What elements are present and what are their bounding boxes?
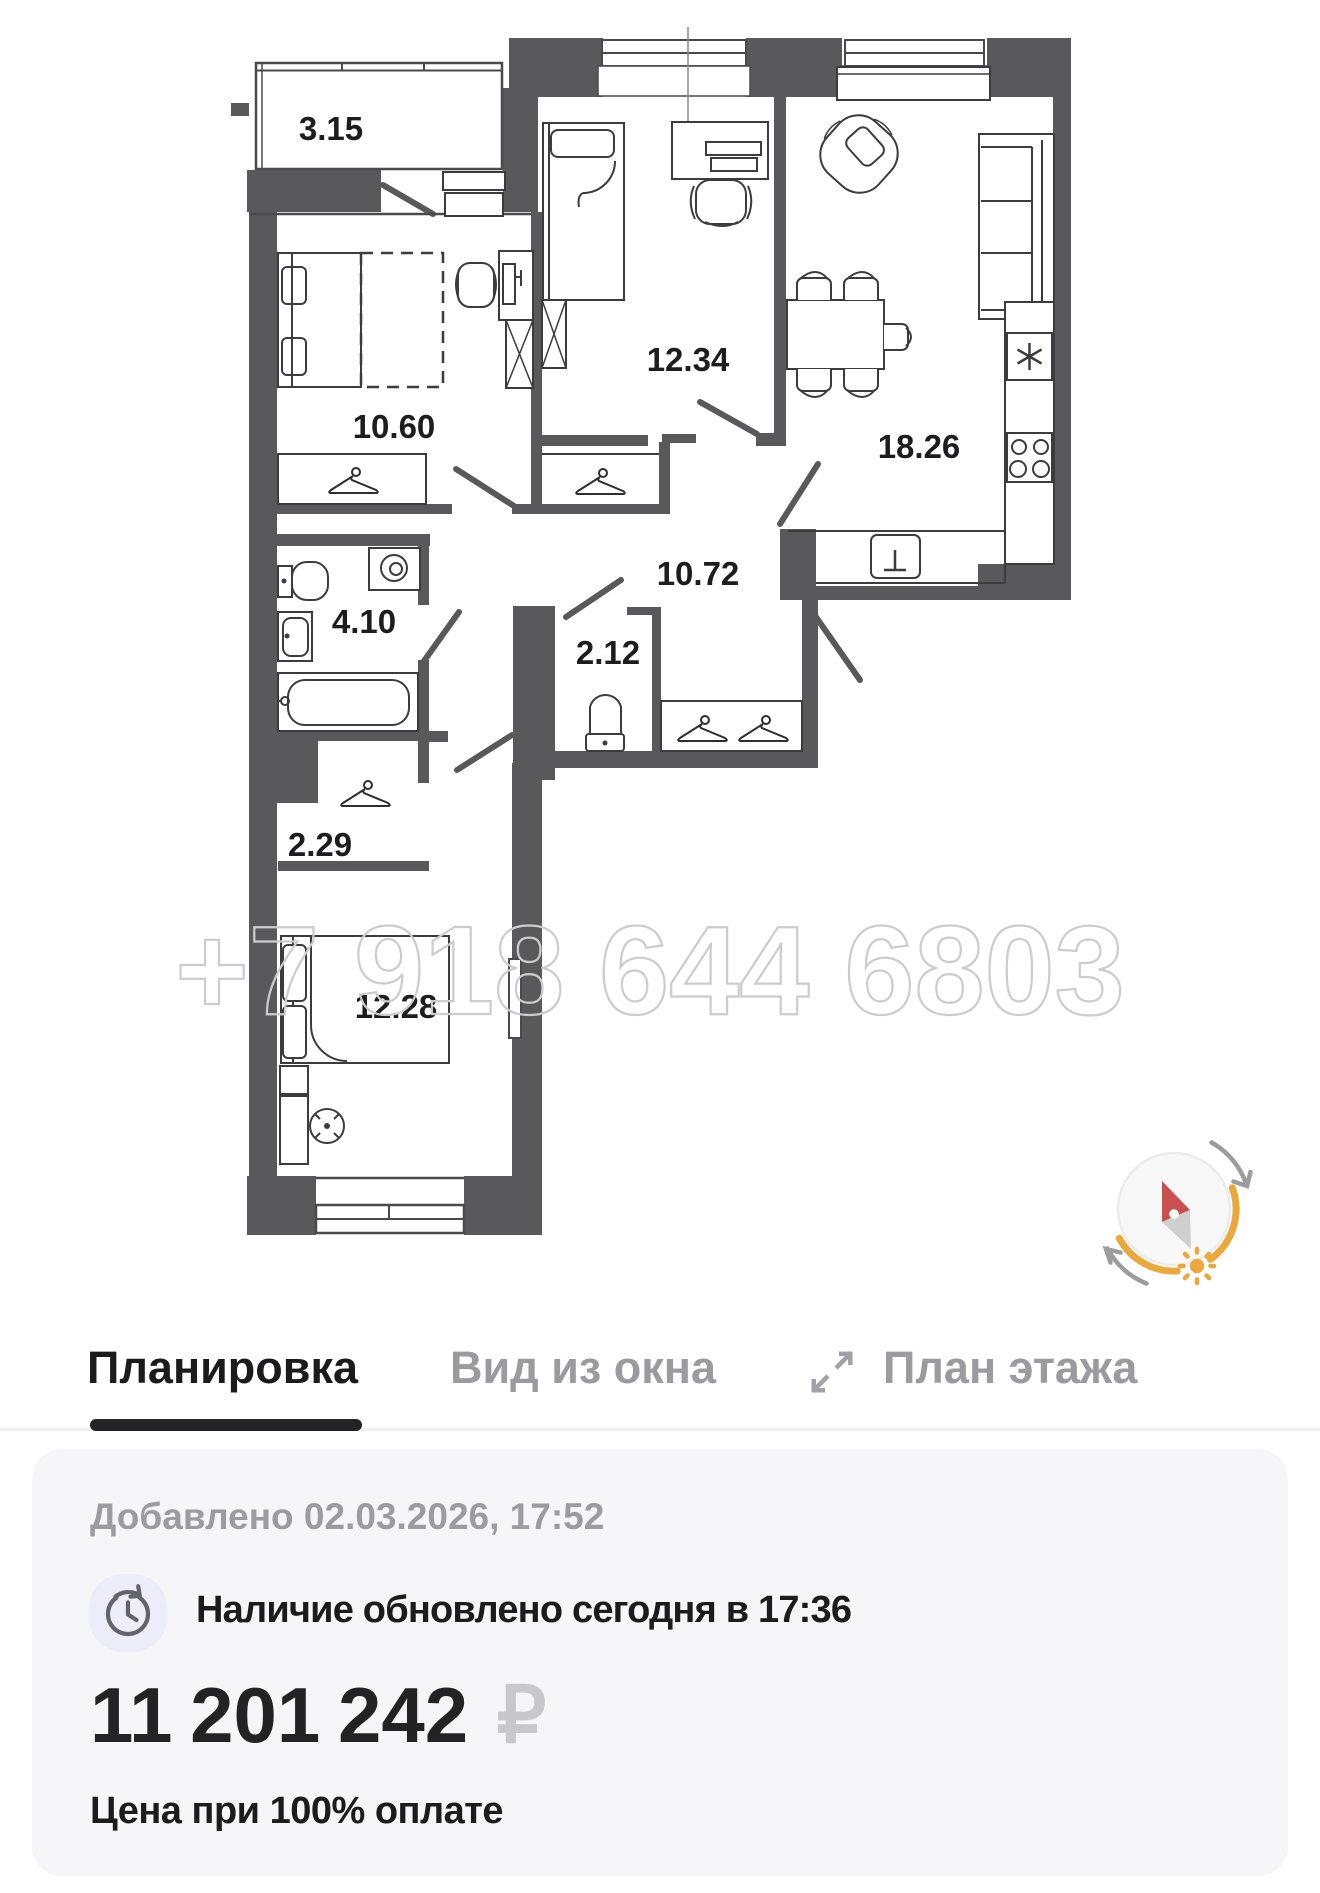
- svg-text:12.34: 12.34: [647, 341, 730, 378]
- svg-text:10.72: 10.72: [657, 555, 740, 592]
- svg-text:18.26: 18.26: [878, 428, 961, 465]
- svg-text:3.15: 3.15: [299, 110, 363, 147]
- svg-text:10.60: 10.60: [353, 408, 436, 445]
- svg-text:2.12: 2.12: [576, 634, 640, 671]
- svg-text:4.10: 4.10: [332, 603, 396, 640]
- svg-text:+7 918 644 6803: +7 918 644 6803: [175, 900, 1124, 1041]
- svg-text:2.29: 2.29: [288, 826, 352, 863]
